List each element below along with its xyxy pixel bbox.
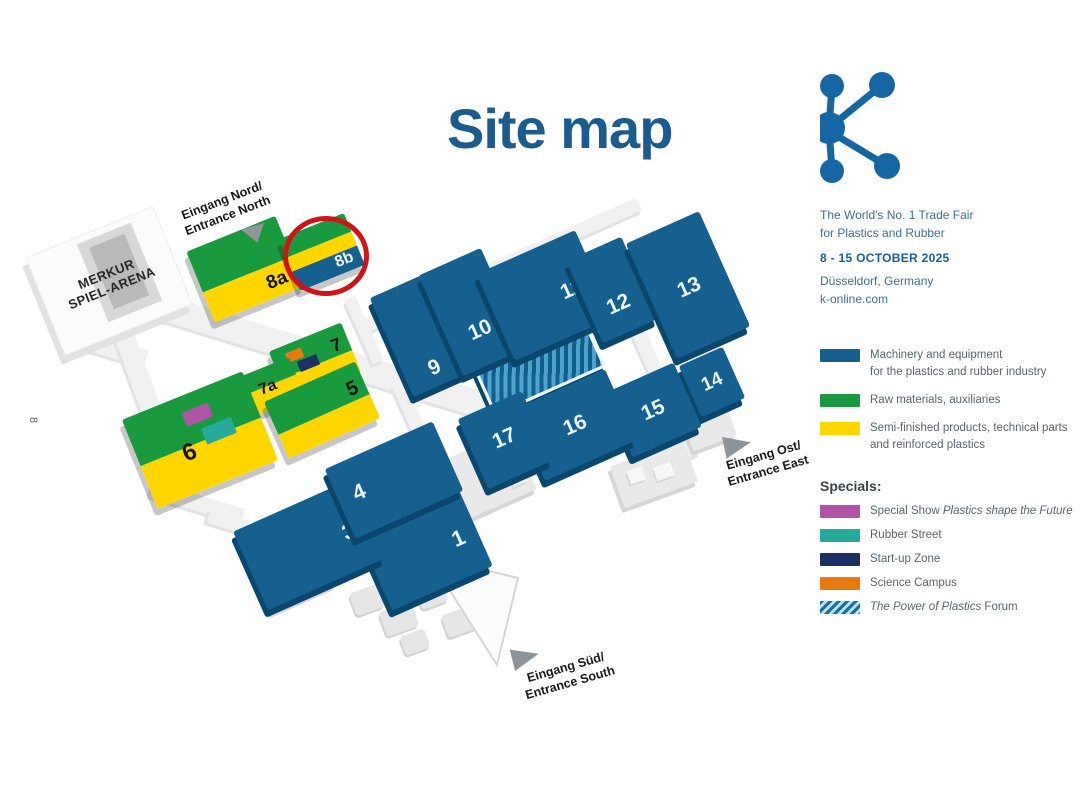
hall-label: 12 xyxy=(604,290,634,319)
legend-text: The Power of Plastics Forum xyxy=(870,601,1018,613)
swatch-rubber-street xyxy=(820,529,860,542)
swatch-science-campus xyxy=(820,577,860,590)
hall-label: 16 xyxy=(560,411,590,440)
legend-item-semi-finished: Semi-finished products, technical parts … xyxy=(820,420,1075,454)
legend-text: Machinery and equipment for the plastics… xyxy=(870,347,1046,381)
legend-text: Special Show Plastics shape the Future xyxy=(870,505,1073,517)
legend-item-rubber-street: Rubber Street xyxy=(820,528,1080,541)
specials-heading: Specials: xyxy=(820,478,1080,494)
legend-line: for the plastics and rubber industry xyxy=(870,364,1046,381)
site-map-page: Site map MERKUR SPIEL-ARENA 1 xyxy=(0,0,1080,791)
legend-line: Machinery and equipment xyxy=(870,347,1046,364)
hall-label: 17 xyxy=(489,424,519,453)
legend-text: Rubber Street xyxy=(870,529,942,541)
hall-label: 1 xyxy=(448,526,468,551)
legend-item-science-campus: Science Campus xyxy=(820,576,1080,589)
text-segment-italic: Plastics shape the Future xyxy=(943,505,1073,517)
page-title: Site map xyxy=(447,96,672,161)
legend-line: Semi-finished products, technical parts xyxy=(870,420,1068,437)
k-logo xyxy=(820,72,902,194)
hall-label: 13 xyxy=(674,273,704,302)
legend-item-machinery: Machinery and equipment for the plastics… xyxy=(820,347,1075,381)
swatch-semi-finished xyxy=(820,422,860,435)
brand-text-block: The World's No. 1 Trade Fair for Plastic… xyxy=(820,206,973,308)
kiosk xyxy=(475,592,506,620)
entrance-south-arrow-icon xyxy=(510,643,542,671)
hall-label: 4 xyxy=(349,480,369,505)
brand-tagline-1: The World's No. 1 Trade Fair xyxy=(820,206,973,224)
swatch-machinery xyxy=(820,349,860,362)
text-segment-italic: The Power of Plastics xyxy=(870,601,981,613)
legend-item-special-show: Special Show Plastics shape the Future xyxy=(820,504,1080,517)
legend-text: Science Campus xyxy=(870,577,957,589)
swatch-startup-zone xyxy=(820,553,860,566)
legend-line: Raw materials, auxiliaries xyxy=(870,392,1000,409)
hall-label: 10 xyxy=(465,315,495,344)
highlight-circle-8b xyxy=(283,216,369,296)
legend-text: Raw materials, auxiliaries xyxy=(870,392,1000,409)
text-segment: Forum xyxy=(981,601,1017,613)
page-marker: 8 xyxy=(27,417,39,423)
text-segment: Start-up Zone xyxy=(870,553,940,565)
event-website[interactable]: k-online.com xyxy=(820,290,973,308)
text-segment: Rubber Street xyxy=(870,529,942,541)
swatch-raw-materials xyxy=(820,394,860,407)
swatch-special-show xyxy=(820,505,860,518)
kiosk xyxy=(399,628,430,656)
legend-item-raw-materials: Raw materials, auxiliaries xyxy=(820,392,1075,409)
event-location: Düsseldorf, Germany xyxy=(820,272,973,290)
hall-label: 15 xyxy=(638,396,668,425)
service-building xyxy=(610,440,698,508)
kiosk xyxy=(441,606,477,639)
text-segment: Special Show xyxy=(870,505,943,517)
legend-line: and reinforced plastics xyxy=(870,437,1068,454)
legend: Machinery and equipment for the plastics… xyxy=(820,347,1075,465)
legend-item-startup-zone: Start-up Zone xyxy=(820,552,1080,565)
legend-text: Start-up Zone xyxy=(870,553,940,565)
specials-legend: Specials: Special Show Plastics shape th… xyxy=(820,478,1080,624)
text-segment: Science Campus xyxy=(870,577,957,589)
hall-label: 14 xyxy=(698,369,725,395)
legend-text: Semi-finished products, technical parts … xyxy=(870,420,1068,454)
brand-tagline-2: for Plastics and Rubber xyxy=(820,224,973,242)
swatch-power-of-plastics-forum xyxy=(820,601,860,614)
event-dates: 8 - 15 OCTOBER 2025 xyxy=(820,247,973,269)
legend-item-power-of-plastics-forum: The Power of Plastics Forum xyxy=(820,600,1080,613)
service-box xyxy=(626,466,646,485)
service-box xyxy=(653,462,675,481)
hall-label: 9 xyxy=(425,355,444,379)
